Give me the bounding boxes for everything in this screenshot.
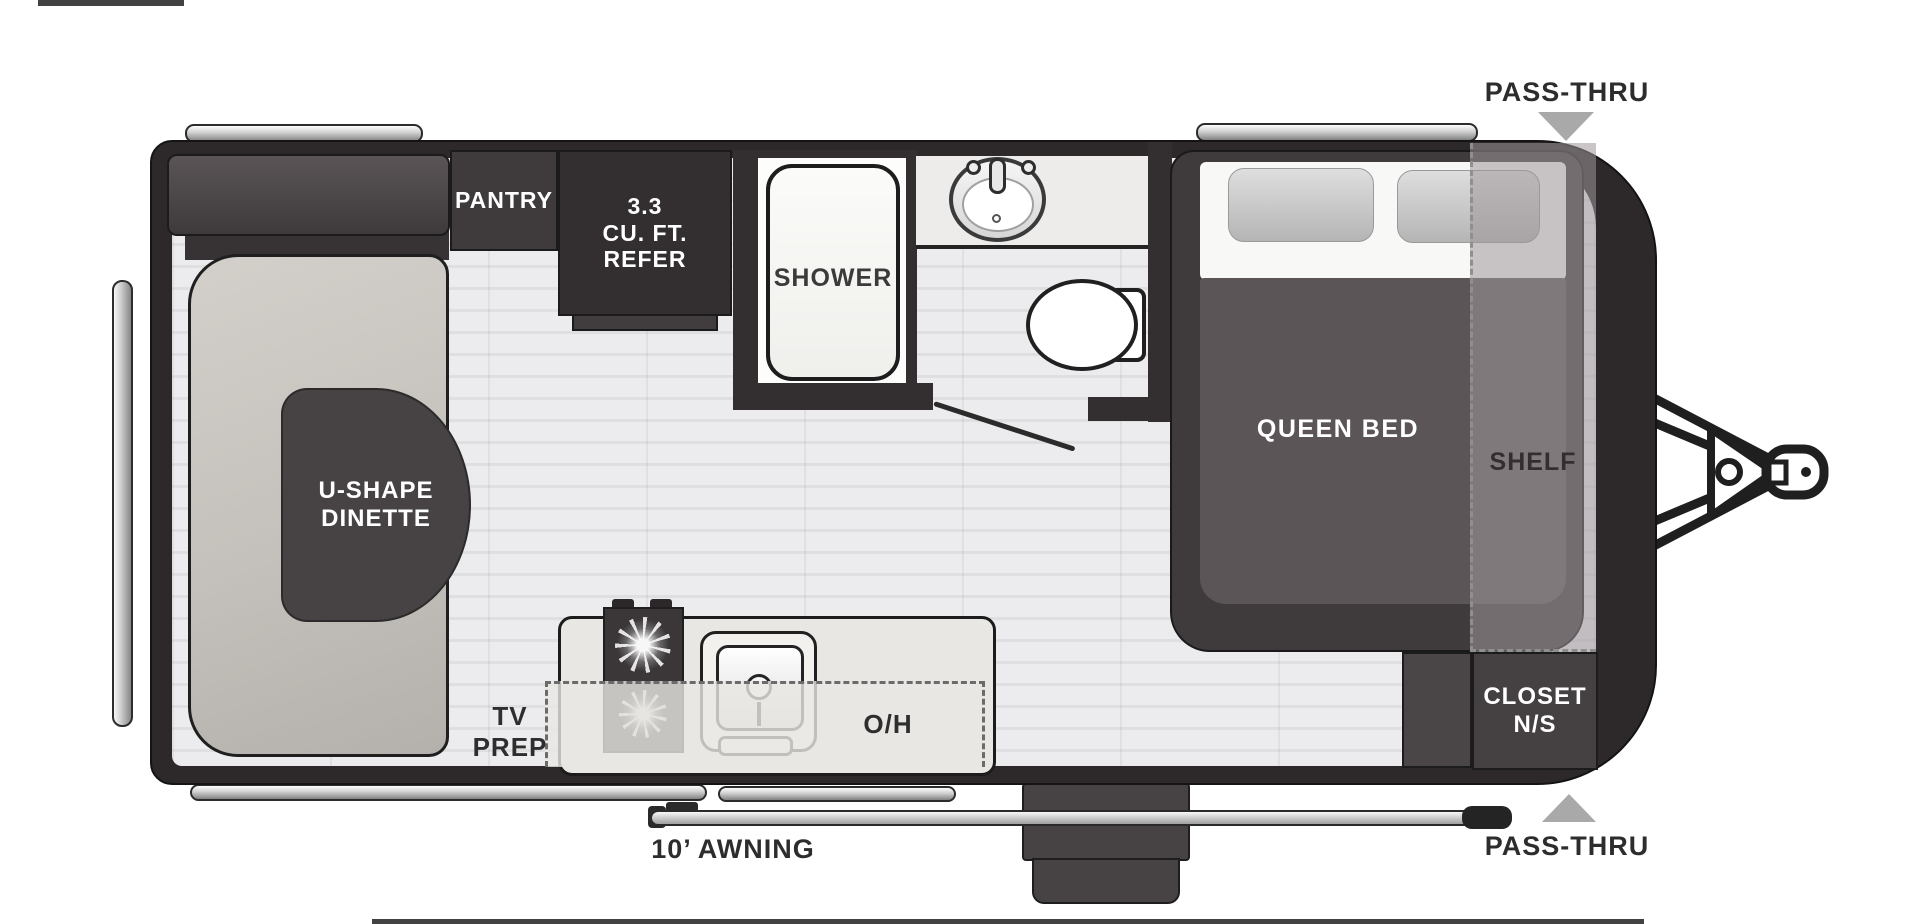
stove-burner-top — [615, 617, 671, 673]
bottom-rail-mid — [718, 786, 956, 802]
toilet-icon — [1026, 279, 1138, 371]
crop-artifact-top — [38, 0, 184, 6]
dinette-label-line2: DINETTE — [321, 505, 431, 533]
refer-label-line3: REFER — [604, 246, 687, 272]
bottom-rail-left — [190, 784, 707, 801]
pass-thru-top-label: PASS-THRU — [1467, 77, 1667, 108]
refer-label-line2: CU. FT. — [603, 220, 688, 246]
refrigerator-step — [572, 314, 718, 331]
pass-thru-top-arrow-icon — [1538, 112, 1594, 141]
awning-label: 10’ AWNING — [618, 834, 848, 865]
bath-sink-drain — [992, 214, 1001, 223]
entry-steps-lower — [1032, 858, 1180, 904]
awning-right-cap — [1462, 806, 1512, 829]
closet-label-line2: N/S — [1513, 711, 1556, 739]
bath-faucet-knob-right — [1021, 160, 1036, 175]
shelf-label: SHELF — [1474, 448, 1592, 477]
pass-thru-bottom-arrow-icon — [1542, 794, 1596, 822]
shower-bottom-wall — [733, 383, 933, 410]
tv-prep-label-line2: PREP — [460, 732, 560, 763]
closet-label-line1: CLOSET — [1483, 683, 1586, 711]
rear-bumper-rail — [112, 280, 133, 727]
bath-faucet-icon — [989, 158, 1006, 194]
bathroom-right-wall — [1148, 142, 1172, 422]
queen-bed-label: QUEEN BED — [1216, 415, 1460, 444]
closet: CLOSET N/S — [1472, 652, 1598, 770]
shower-label: SHOWER — [733, 264, 933, 293]
tv-prep-label-line1: TV — [460, 701, 560, 732]
bathroom-door-wall-stub — [1088, 397, 1172, 421]
shelf-overlay — [1470, 143, 1596, 652]
nightstand — [1402, 652, 1472, 768]
refrigerator: 3.3 CU. FT. REFER — [558, 150, 732, 316]
dinette-label-line1: U-SHAPE — [318, 477, 433, 505]
awning-bar — [650, 810, 1512, 826]
crop-artifact-bottom — [372, 919, 1644, 924]
bath-faucet-knob-left — [966, 160, 981, 175]
pantry-label: PANTRY — [455, 187, 553, 213]
bed-pillow-left — [1228, 168, 1374, 242]
dinette-table: U-SHAPE DINETTE — [281, 388, 471, 622]
pass-thru-bottom-label: PASS-THRU — [1467, 831, 1667, 862]
pantry: PANTRY — [450, 150, 558, 251]
refer-label-line1: 3.3 — [628, 193, 663, 219]
floorplan-stage: PANTRY 3.3 CU. FT. REFER U-SHAPE DINETTE… — [0, 0, 1920, 924]
tv-prep-label: TV PREP — [460, 701, 560, 763]
rear-overhead-cabinet — [167, 154, 450, 236]
overhead-label: O/H — [843, 710, 933, 740]
